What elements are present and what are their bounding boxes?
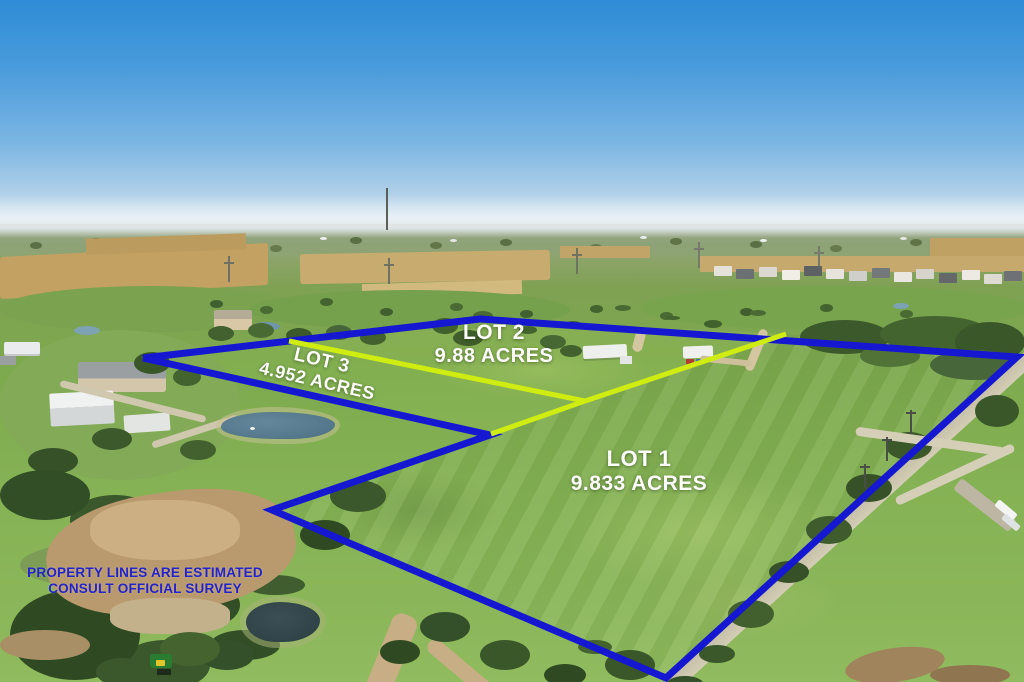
- disclaimer: PROPERTY LINES ARE ESTIMATED CONSULT OFF…: [20, 565, 270, 598]
- transmission-tower-arms: [224, 262, 234, 264]
- lot1-name: LOT 1: [544, 447, 734, 472]
- forest-mass: [0, 470, 90, 520]
- tan-field: [700, 256, 1024, 272]
- tree: [975, 395, 1019, 427]
- tree: [173, 368, 201, 386]
- lot2-acreage: 9.88 ACRES: [399, 345, 589, 367]
- housing-row: [714, 266, 732, 276]
- tree: [180, 440, 216, 460]
- aerial-photo: LOT 2 9.88 ACRES LOT 3 4.952 ACRES LOT 1…: [0, 0, 1024, 682]
- dirt-patch: [110, 598, 230, 634]
- cow: [250, 427, 255, 430]
- small-shed: [620, 356, 632, 364]
- transmission-towers: [228, 256, 230, 282]
- distant-tree-specks: [30, 242, 42, 249]
- utility-pole-arms: [906, 412, 916, 414]
- tree: [380, 640, 420, 664]
- lot1-label: LOT 1 9.833 ACRES: [544, 447, 734, 495]
- pond: [221, 412, 335, 439]
- tree: [300, 520, 350, 550]
- radio-tower: [386, 188, 388, 230]
- dirt-patch: [930, 665, 1010, 682]
- tree: [92, 428, 132, 450]
- white-shed: [123, 412, 170, 433]
- rv-trailer: [4, 342, 40, 354]
- small-pond: [74, 326, 100, 335]
- dirt-patch: [90, 500, 240, 560]
- tree: [96, 658, 146, 682]
- disclaimer-line1: PROPERTY LINES ARE ESTIMATED: [20, 565, 270, 581]
- lot1-acreage: 9.833 ACRES: [544, 472, 734, 496]
- tree-row: [208, 326, 234, 341]
- shrub-dots: [210, 300, 223, 308]
- tree: [134, 352, 170, 374]
- lot2-name: LOT 2: [399, 321, 589, 345]
- tractor-cab: [156, 660, 165, 666]
- small-pond: [893, 303, 909, 309]
- disclaimer-line2: CONSULT OFFICIAL SURVEY: [20, 581, 270, 597]
- dirt-patch: [0, 630, 90, 660]
- tan-field: [930, 238, 1024, 256]
- tan-field: [560, 246, 650, 258]
- tree-row-bottom: [420, 612, 470, 642]
- tan-field: [300, 250, 550, 284]
- vehicle: [686, 359, 694, 364]
- tree: [860, 345, 920, 367]
- small-pond: [252, 322, 280, 331]
- lot2-label: LOT 2 9.88 ACRES: [399, 321, 589, 367]
- horizon-haze: [0, 194, 1024, 238]
- tree: [330, 480, 386, 512]
- gray-shed: [0, 356, 16, 365]
